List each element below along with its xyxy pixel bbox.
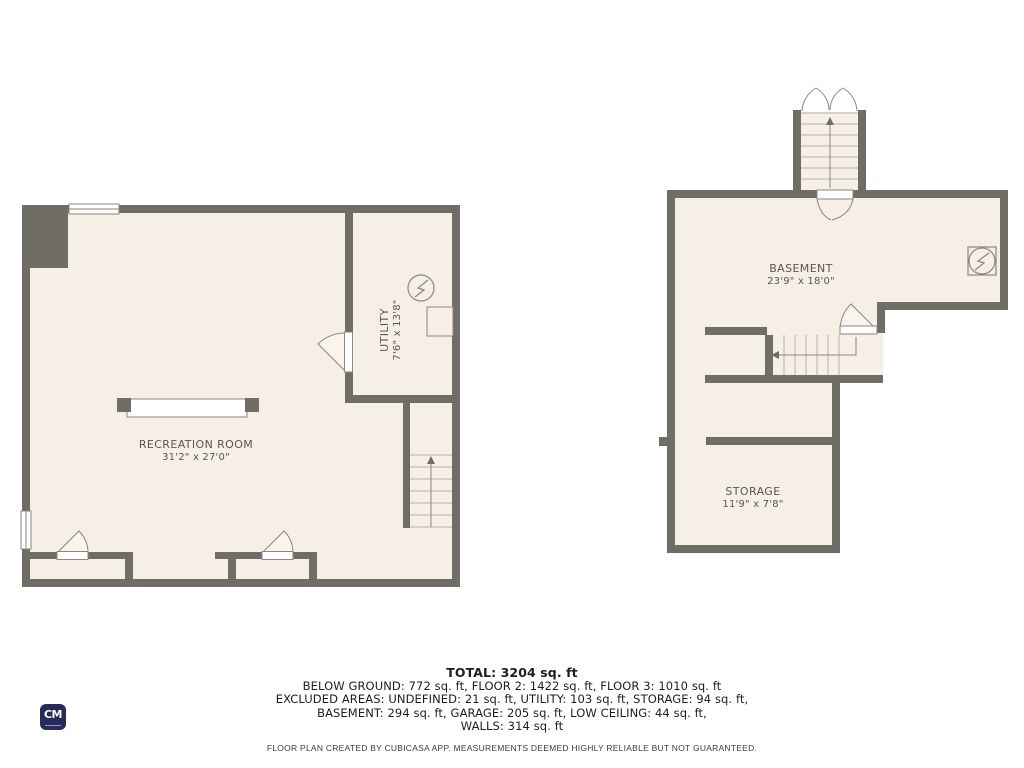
basement-level-plan [659, 88, 1008, 553]
room-label-storage: STORAGE 11'9" x 7'8" [722, 485, 783, 511]
wall [1000, 190, 1008, 310]
window [21, 511, 31, 549]
room-dimensions: 31'2" x 27'0" [139, 452, 253, 465]
room-name: STORAGE [722, 485, 783, 499]
wall [801, 190, 817, 198]
wall-stair-enclosure [403, 403, 410, 528]
cubicasa-logo: CM [40, 704, 66, 730]
summary-line: WALLS: 314 sq. ft [0, 720, 1024, 734]
wall [667, 545, 840, 553]
wall [125, 552, 133, 579]
logo-subtext-rule [45, 725, 61, 727]
half-wall [705, 327, 767, 335]
floor-plan-page: RECREATION ROOM 31'2" x 27'0" UTILITY 7'… [0, 0, 1024, 768]
wall [215, 552, 262, 559]
room-name: UTILITY [378, 299, 392, 360]
logo-letters: CM [40, 704, 66, 726]
room-label-utility: UTILITY 7'6" x 13'8" [378, 299, 404, 360]
room-label-recreation: RECREATION ROOM 31'2" x 27'0" [139, 438, 253, 464]
window [69, 204, 119, 214]
summary-line: BELOW GROUND: 772 sq. ft, FLOOR 2: 1422 … [0, 680, 1024, 694]
wall [345, 205, 353, 332]
wall [883, 302, 1008, 310]
wall-storage [706, 437, 832, 445]
door-leaf [840, 326, 877, 334]
door-leaf [262, 552, 293, 560]
wall [667, 190, 793, 198]
room-dimensions: 23'9" x 18'0" [767, 276, 835, 289]
wall [30, 552, 57, 559]
wall-stairwell [793, 110, 801, 198]
media-console [117, 398, 259, 417]
wall [228, 552, 236, 579]
double-door-top-arcs [802, 88, 857, 111]
wall [866, 190, 1008, 198]
wall [667, 190, 675, 553]
floor-plan-drawing [0, 0, 1024, 768]
half-wall [705, 375, 883, 383]
console-post [245, 398, 259, 412]
wall-stairwell [858, 110, 866, 198]
wall [22, 579, 460, 587]
wall-stub [659, 437, 667, 446]
door-threshold [817, 190, 853, 199]
disclaimer-text: FLOOR PLAN CREATED BY CUBICASA APP. MEAS… [0, 743, 1024, 753]
wall [877, 302, 885, 333]
lower-level-plan [21, 204, 460, 587]
wall [309, 552, 317, 579]
door-leaf [57, 552, 88, 560]
total-area: TOTAL: 3204 sq. ft [0, 666, 1024, 680]
summary-line: BASEMENT: 294 sq. ft, GARAGE: 205 sq. ft… [0, 707, 1024, 721]
room-label-basement: BASEMENT 23'9" x 18'0" [767, 262, 835, 288]
appliance-box [427, 307, 453, 336]
wall [832, 383, 840, 553]
room-name: RECREATION ROOM [139, 438, 253, 452]
console-post [117, 398, 131, 412]
area-summary: TOTAL: 3204 sq. ft BELOW GROUND: 772 sq.… [0, 666, 1024, 734]
console-top [127, 399, 247, 417]
wall-corner-block [22, 205, 68, 268]
door-leaf [345, 332, 353, 372]
summary-line: EXCLUDED AREAS: UNDEFINED: 21 sq. ft, UT… [0, 693, 1024, 707]
wall [853, 190, 866, 198]
room-name: BASEMENT [767, 262, 835, 276]
room-dimensions: 11'9" x 7'8" [722, 499, 783, 512]
room-dimensions: 7'6" x 13'8" [392, 299, 405, 360]
wall [345, 395, 460, 403]
